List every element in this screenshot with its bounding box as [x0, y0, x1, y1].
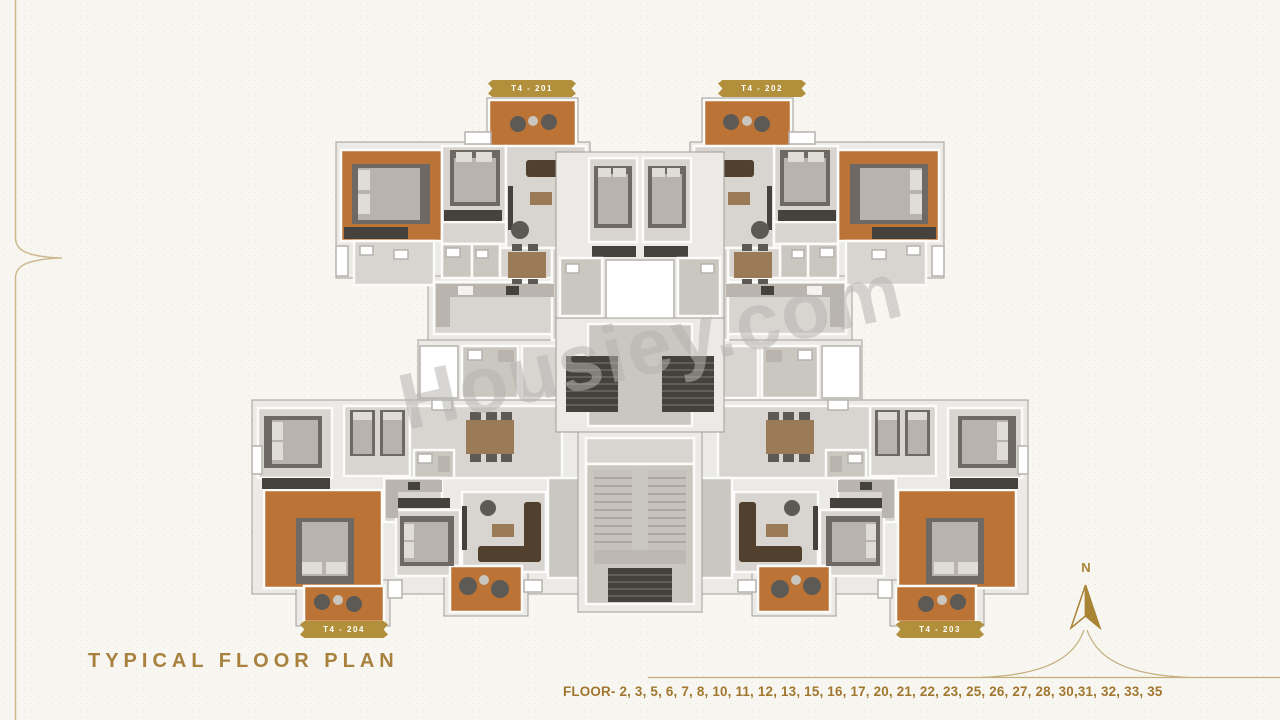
left-edge-flourish	[16, 0, 63, 720]
unit-ribbon-t4-201: T4 - 201	[488, 80, 576, 97]
floor-numbers-text: FLOOR- 2, 3, 5, 6, 7, 8, 10, 11, 12, 13,…	[563, 684, 1163, 699]
north-arrow-icon	[1071, 585, 1100, 628]
unit-ribbon-t4-202: T4 - 202	[718, 80, 806, 97]
unit-ribbon-t4-204: T4 - 204	[300, 621, 388, 638]
page-title: TYPICAL FLOOR PLAN	[88, 650, 399, 673]
unit-ribbon-t4-203: T4 - 203	[896, 621, 984, 638]
compass-north-label: N	[1077, 560, 1095, 575]
